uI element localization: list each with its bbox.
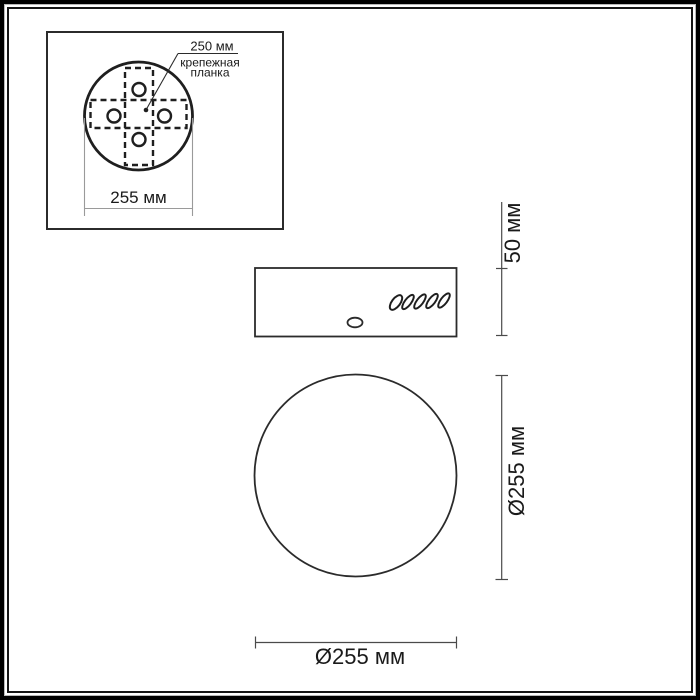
- side-view-body: [255, 268, 457, 337]
- diameter-dimension-label-horizontal: Ø255 мм: [315, 644, 405, 670]
- vent-slot-5: [436, 292, 451, 310]
- height-dimension-label: 50 мм: [500, 202, 526, 263]
- vent-slot-3: [412, 293, 427, 311]
- mounting-bar-caption: крепежная планка: [180, 59, 239, 78]
- screw-hole-right: [158, 110, 171, 123]
- screw-hole-bottom: [133, 133, 146, 146]
- screw-hole-left: [108, 110, 121, 123]
- cable-hole-oval: [348, 318, 363, 328]
- vent-slot-4: [424, 292, 439, 310]
- front-view-plate-circle: [255, 375, 457, 577]
- top-view-plate-circle: [85, 62, 193, 170]
- technical-drawing-canvas: 250 мм крепежная планка 255 мм 50 мм Ø25…: [0, 0, 700, 700]
- drawing-linework: [0, 0, 700, 700]
- inset-width-dimension-label: 255 мм: [110, 188, 166, 208]
- diameter-dimension-label-vertical: Ø255 мм: [504, 426, 530, 516]
- mounting-bar-horizontal: [91, 100, 187, 128]
- screw-hole-top: [133, 83, 146, 96]
- mounting-pitch-label: 250 мм: [190, 39, 233, 54]
- center-point-dot: [144, 108, 149, 113]
